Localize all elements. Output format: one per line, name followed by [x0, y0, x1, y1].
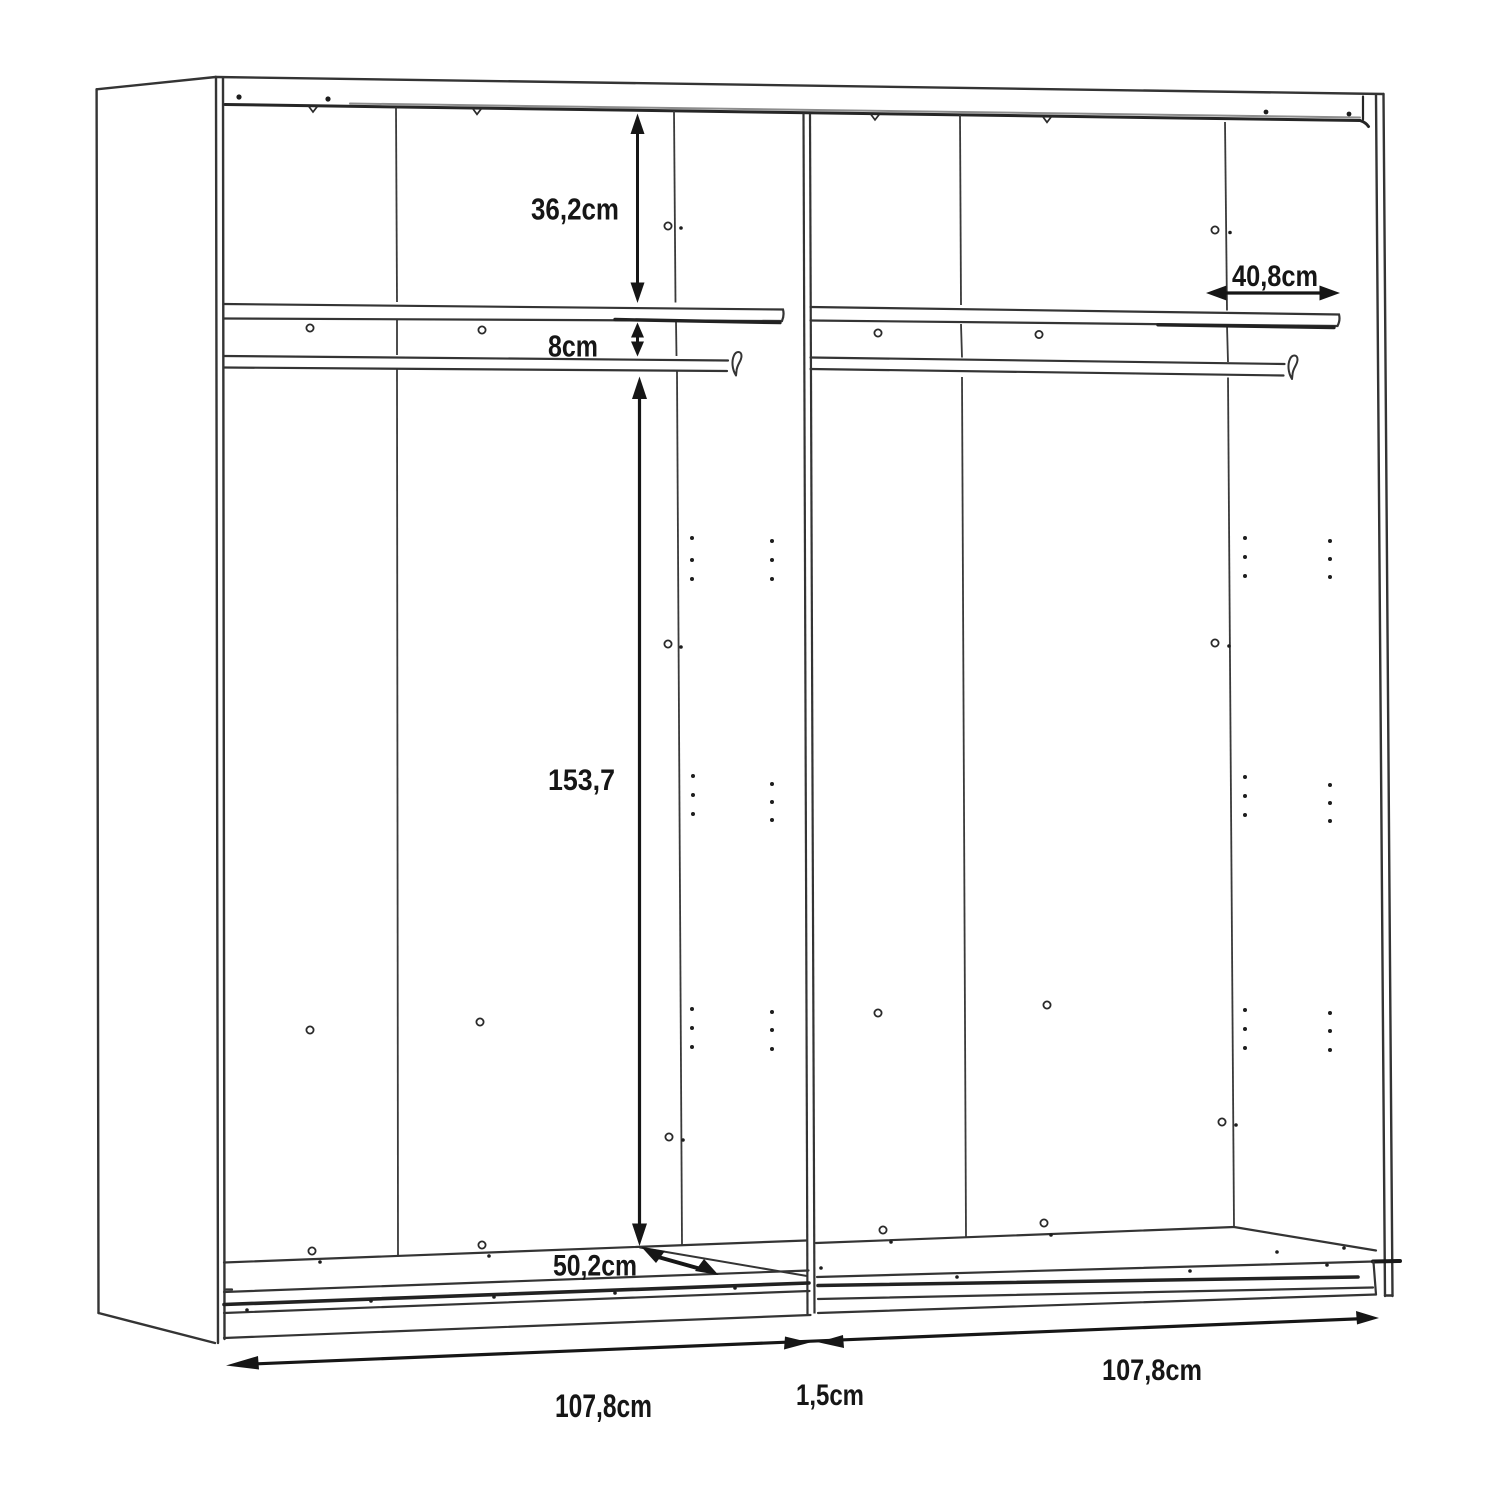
svg-text:107,8cm: 107,8cm — [555, 1388, 652, 1424]
svg-text:40,8cm: 40,8cm — [1232, 260, 1318, 293]
svg-text:50,2cm: 50,2cm — [553, 1250, 637, 1283]
svg-text:8cm: 8cm — [548, 329, 598, 364]
svg-text:107,8cm: 107,8cm — [1102, 1354, 1202, 1387]
svg-text:153,7: 153,7 — [548, 764, 615, 797]
svg-text:36,2cm: 36,2cm — [531, 192, 619, 227]
svg-text:1,5cm: 1,5cm — [796, 1379, 864, 1412]
